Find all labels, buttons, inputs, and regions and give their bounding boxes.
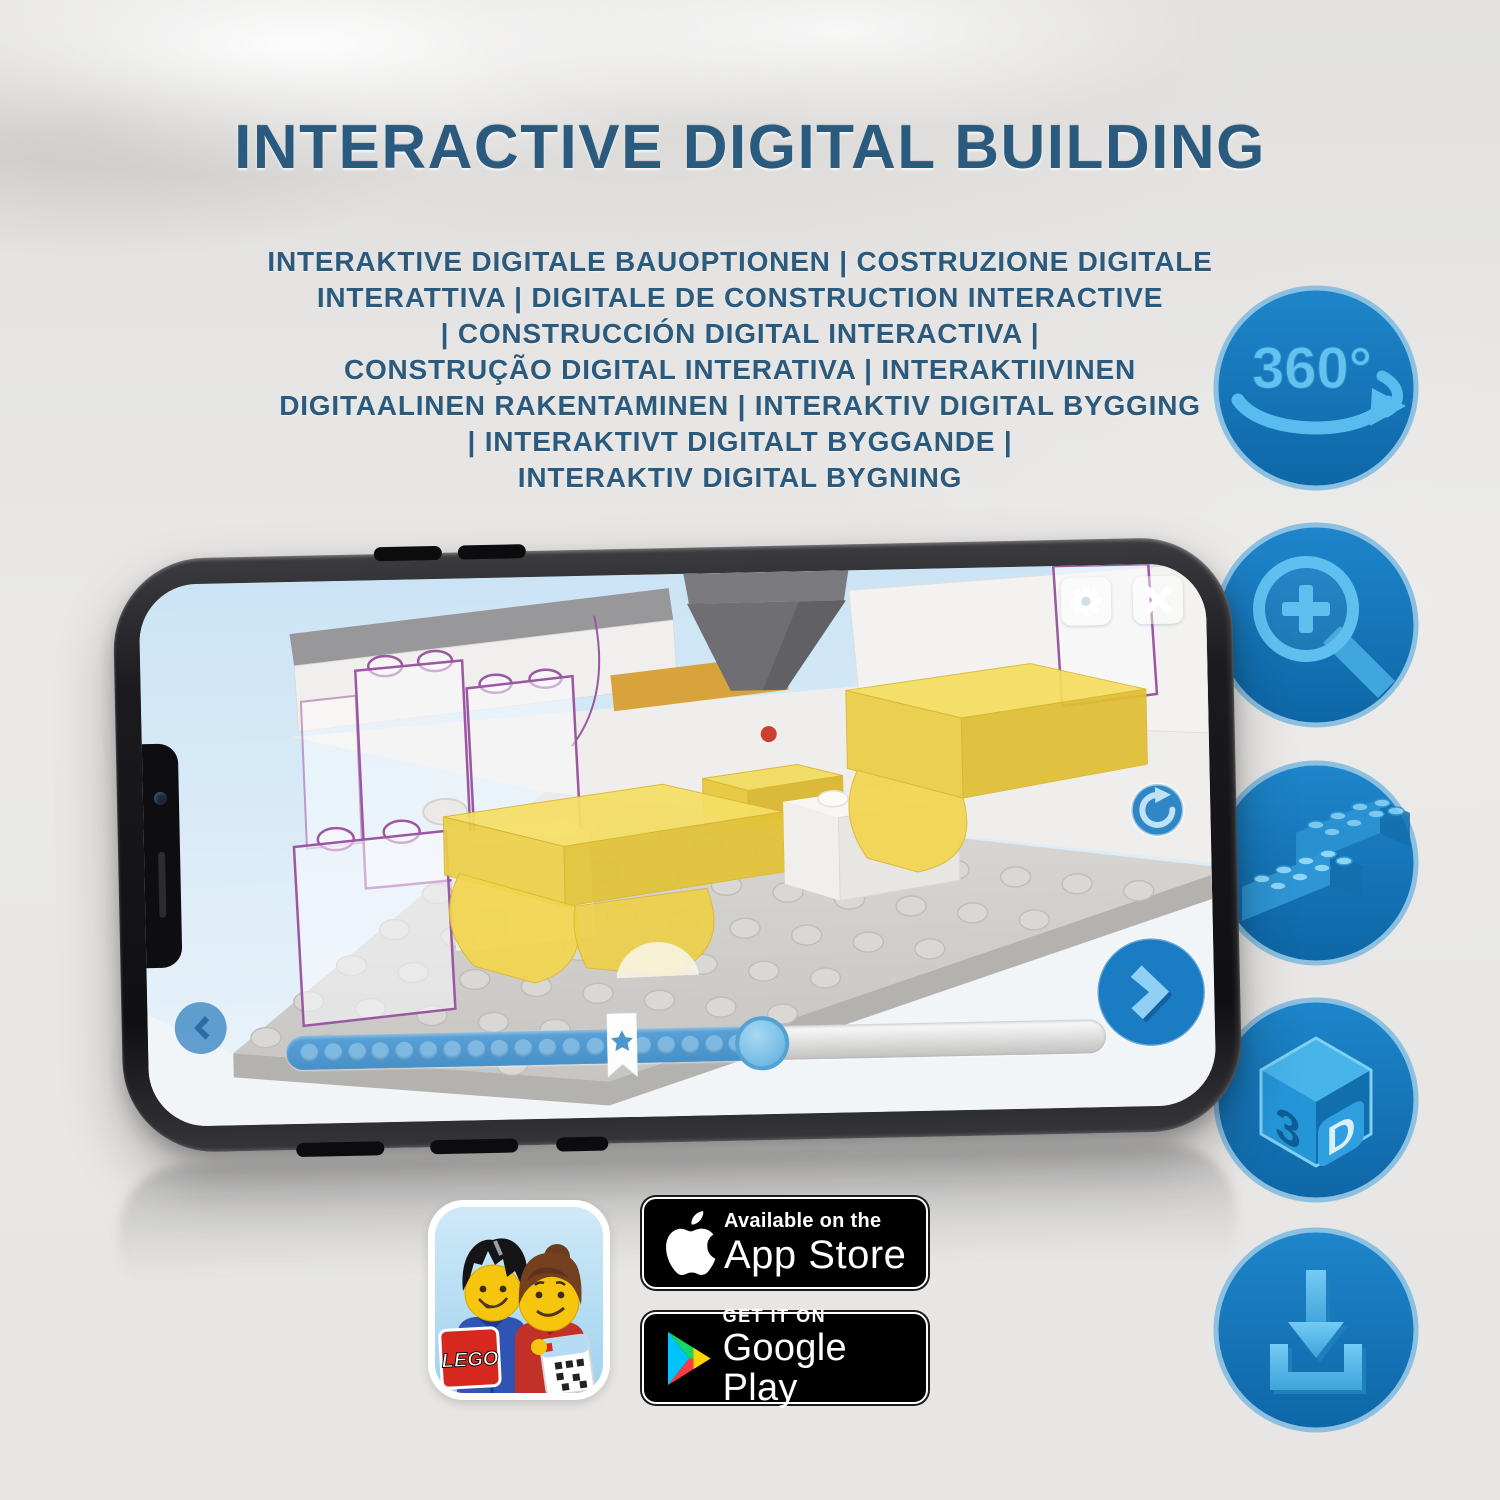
side-button	[296, 1141, 384, 1157]
close-button[interactable]	[1132, 575, 1183, 624]
earpiece-speaker	[158, 852, 166, 918]
settings-button[interactable]	[1060, 577, 1111, 626]
star-bookmark-icon	[607, 1013, 638, 1078]
slider-handle[interactable]	[734, 1016, 789, 1071]
slider-dot	[443, 1041, 461, 1059]
lego-minifigures-art: LEGO	[435, 1207, 603, 1393]
volume-button	[374, 546, 442, 561]
close-x-icon	[1140, 582, 1177, 619]
phone	[112, 536, 1243, 1153]
front-camera	[154, 792, 167, 805]
subtitle-line: CONSTRUÇÃO DIGITAL INTERATIVA | INTERAKT…	[100, 352, 1380, 388]
page-title: INTERACTIVE DIGITAL BUILDING	[0, 112, 1500, 183]
lego-app-promo-page: INTERACTIVE DIGITAL BUILDING INTERAKTIVE…	[0, 0, 1500, 1500]
apple-logo-icon	[666, 1210, 718, 1276]
volume-button	[458, 544, 526, 559]
slider-dot	[562, 1038, 580, 1056]
google-play-badge[interactable]: GET IT ON Google Play	[642, 1312, 928, 1404]
side-button	[556, 1137, 608, 1152]
360-label: 360°	[1252, 336, 1372, 401]
download-tray-icon	[1212, 1226, 1420, 1434]
gear-icon	[1067, 582, 1106, 621]
star-bookmark-marker	[607, 1013, 638, 1078]
side-button	[430, 1138, 518, 1154]
rotate-clockwise-icon	[1129, 781, 1186, 838]
slider-dot	[586, 1038, 604, 1056]
subtitle-line: INTERAKTIV DIGITAL BYGNING	[100, 460, 1380, 496]
subtitle-line: INTERATTIVA | DIGITALE DE CONSTRUCTION I…	[100, 280, 1380, 316]
lego-app-icon: LEGO	[428, 1200, 610, 1400]
app-store-badge[interactable]: Available on the App Store	[642, 1197, 928, 1289]
building-app-screen	[138, 563, 1216, 1127]
next-step-button[interactable]	[1094, 935, 1208, 1049]
slider-dot	[324, 1043, 342, 1061]
slider-dot	[348, 1043, 366, 1061]
360-rotation-icon: 360°	[1212, 284, 1420, 492]
feature-download	[1212, 1226, 1420, 1434]
slider-dot	[681, 1036, 699, 1054]
app-store-name: App Store	[724, 1234, 906, 1276]
feature-360-rotation: 360°	[1212, 284, 1420, 492]
google-play-tagline: GET IT ON	[723, 1307, 926, 1326]
subtitle-line: INTERAKTIVE DIGITALE BAUOPTIONEN | COSTR…	[100, 244, 1380, 280]
slider-dot	[705, 1035, 723, 1053]
slider-dot	[467, 1040, 485, 1058]
rotate-model-button[interactable]	[1129, 781, 1186, 838]
google-play-name: Google Play	[723, 1329, 926, 1409]
previous-step-button[interactable]	[173, 1000, 228, 1055]
subtitle-line: | INTERAKTIVT DIGITALT BYGGANDE |	[100, 424, 1380, 460]
feature-brick	[1212, 759, 1420, 967]
phone-notch	[138, 743, 182, 968]
subtitle-line: | CONSTRUCCIÓN DIGITAL INTERACTIVA |	[100, 316, 1380, 352]
lego-logo-text: LEGO	[441, 1348, 499, 1373]
feature-3d-view: D 3	[1212, 996, 1420, 1204]
magnifier-plus-icon	[1212, 521, 1420, 729]
3d-cube-icon: D 3	[1212, 996, 1420, 1204]
feature-zoom	[1212, 521, 1420, 729]
subtitle-block: INTERAKTIVE DIGITALE BAUOPTIONEN | COSTR…	[100, 244, 1380, 496]
chevron-left-icon	[173, 1000, 228, 1055]
lego-brick-icon	[1212, 759, 1420, 967]
subtitle-line: DIGITAALINEN RAKENTAMINEN | INTERAKTIV D…	[100, 388, 1380, 424]
chevron-right-icon	[1094, 935, 1208, 1049]
google-play-triangle-icon	[668, 1331, 711, 1386]
app-store-tagline: Available on the	[724, 1211, 906, 1232]
